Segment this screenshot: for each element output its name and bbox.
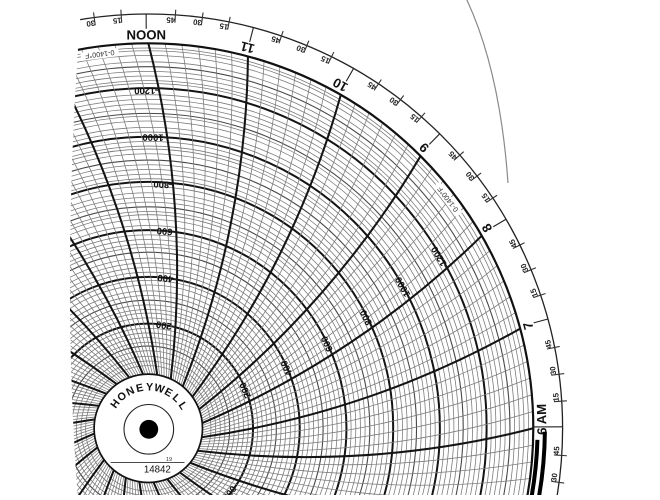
svg-text:800: 800 <box>153 178 169 190</box>
svg-text:200: 200 <box>155 318 172 331</box>
svg-text:400: 400 <box>157 271 174 284</box>
svg-text:15: 15 <box>551 392 561 402</box>
svg-text:1000: 1000 <box>142 131 163 142</box>
svg-text:NOON: NOON <box>126 27 166 42</box>
svg-text:15: 15 <box>112 16 122 26</box>
svg-text:6 AM: 6 AM <box>534 404 550 435</box>
svg-text:600: 600 <box>156 225 173 237</box>
svg-text:45: 45 <box>552 446 561 456</box>
svg-text:30: 30 <box>549 472 559 482</box>
svg-text:45: 45 <box>166 15 176 24</box>
svg-text:1200: 1200 <box>134 84 155 95</box>
svg-text:30: 30 <box>192 17 202 27</box>
svg-text:14842: 14842 <box>144 465 171 476</box>
svg-text:19: 19 <box>166 457 172 463</box>
